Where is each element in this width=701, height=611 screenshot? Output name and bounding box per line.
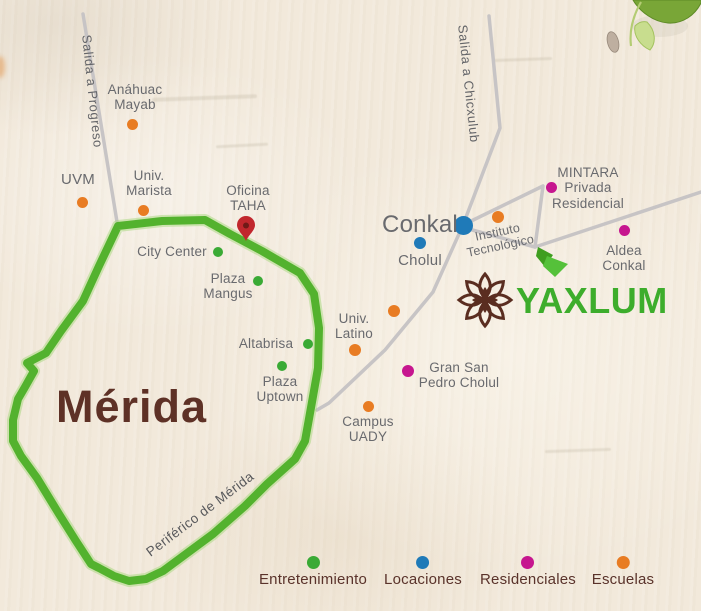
ring-stroke (13, 220, 319, 581)
road-salida-chicxulub (317, 16, 500, 410)
yaxlum-flower-logo (459, 274, 511, 326)
road-salida-progreso (83, 14, 118, 228)
pebble (605, 30, 621, 53)
ring-halo (13, 220, 319, 581)
road-east (535, 192, 701, 247)
yaxlum-location-map: Mérida Periférico de Mérida YAXLUM Salid… (0, 0, 701, 611)
leaf-decoration (605, 0, 701, 54)
site-arrow-light (543, 256, 568, 277)
map-canvas (0, 0, 701, 611)
road-conkal-south (465, 228, 535, 247)
pin-hole (243, 223, 249, 229)
site-arrow-icon (536, 247, 568, 277)
periferico-ring (13, 220, 319, 581)
road-network (83, 14, 701, 410)
